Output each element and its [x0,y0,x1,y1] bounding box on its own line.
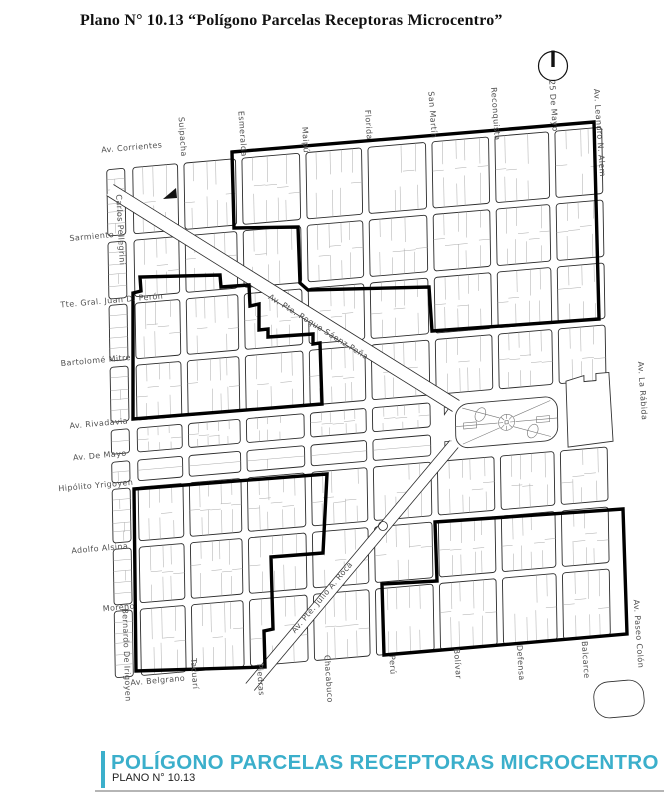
street-label: Defensa [515,645,526,681]
footer-rule [95,790,664,792]
city-block [186,294,239,354]
plaza-de-mayo [455,396,558,449]
footer-accent-bar [101,751,105,788]
city-block [501,511,556,571]
city-block [135,299,181,358]
city-block [435,335,493,395]
street-label: Av. Rivadavia [69,416,128,430]
city-block [139,543,185,602]
plan-document: Plano N° 10.13 “Polígono Parcelas Recept… [0,0,664,794]
street-label: Reconquista [489,87,502,141]
city-block [438,517,496,577]
street-label: Av. Paseo Colón [632,599,647,668]
city-block [187,356,240,415]
city-block [189,478,242,536]
city-block [242,153,301,224]
street-label: Chacabuco [322,655,334,703]
city-block [245,351,304,411]
city-block [500,451,555,509]
city-block [190,538,243,598]
street-label: Av. De Mayo [73,449,127,463]
street-label: Florida [363,110,374,141]
city-block [496,204,551,265]
north-indicator-icon [539,51,568,81]
street-label: Maipú [300,126,311,153]
city-block [138,483,184,540]
street-label: Perú [387,655,397,675]
city-block [306,148,363,219]
city-block [497,267,552,327]
city-block [113,548,132,605]
city-block [433,210,491,271]
city-block [246,414,304,443]
city-block [136,361,182,420]
city-block [247,473,306,532]
street-grid [107,127,617,678]
city-block [112,488,131,543]
city-block [248,533,307,594]
map-footer: POLÍGONO PARCELAS RECEPTORAS MICROCENTRO… [0,748,664,794]
city-block [184,159,237,230]
street-label: San Martín [426,91,438,139]
street-label: Bartolomé Mitre [60,352,131,368]
street-label: Suipacha [177,117,189,157]
city-block [307,221,364,282]
street-label: Bernardo De Irigoyen [120,608,132,702]
park-blob [593,679,646,719]
street-label: Tacuarí [189,657,200,690]
city-block [502,573,557,644]
city-block [310,408,366,437]
street-label: Av. Corrientes [101,140,163,154]
street-label: Balcarce [580,641,592,679]
map-canvas: Av. CorrientesCarlos PellegriniSarmiento… [0,0,664,794]
city-block [372,403,430,432]
city-block [191,600,244,671]
street-label: Av. Belgrano [130,674,185,688]
city-block [432,137,490,208]
street-label: Av. La Rábida [636,361,649,420]
street-label: Sarmiento [69,230,114,243]
government-house-block [566,372,613,447]
city-block [369,215,428,277]
city-block [140,605,186,675]
street-label: Bolívar [452,648,463,679]
city-block [561,507,609,567]
city-block [110,366,129,422]
city-block [311,468,368,526]
footer-plan-number: PLANO N° 10.13 [112,772,195,784]
city-block [495,132,550,203]
street-label: Piedras [255,664,266,697]
city-block [434,273,492,333]
city-block [188,419,240,447]
